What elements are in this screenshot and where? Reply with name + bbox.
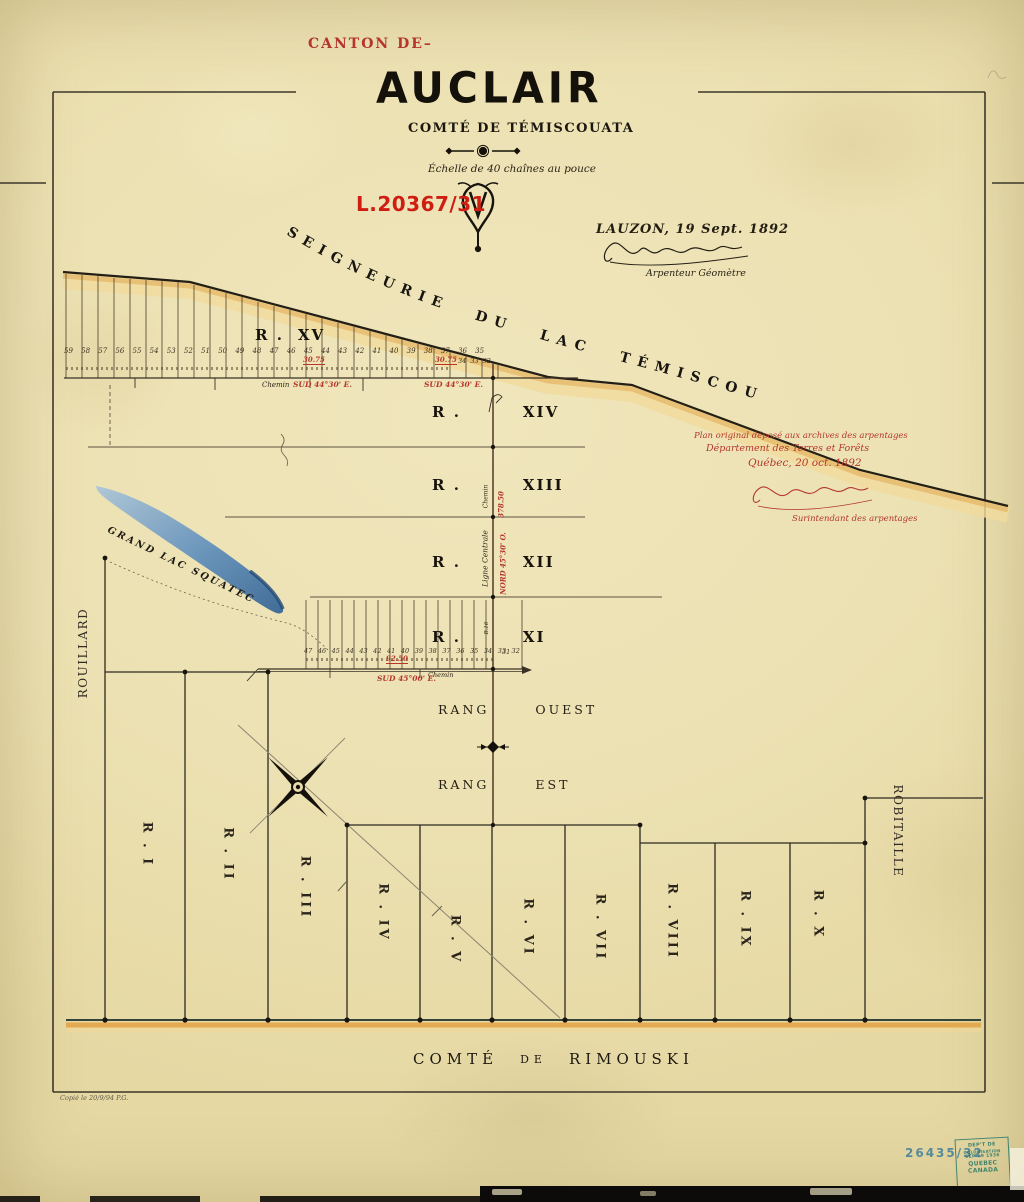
south-county-word1: COMTÉ [413,1050,498,1068]
range-label-xiv-prefix: R . [432,403,461,421]
scale-note: Échelle de 40 chaînes au pouce [428,163,596,175]
file-number-stamp: L.20367/31 [356,192,486,216]
range-label-viii: R . VIII [665,877,680,967]
edge-mark [492,1189,522,1195]
range-label-xv: R . XV [255,326,325,344]
lot-acreage-row-r15 [66,367,450,370]
rang-est-word2: EST [535,777,570,792]
superintendent-signature [753,487,872,510]
bearing-r15-a: SUD 44°30' E. [293,380,352,389]
canton-label: CANTON DE– [308,36,433,52]
east-neighbor-label: ROBITAILLE [891,771,905,891]
compass-star [268,757,328,817]
bearing-r11: SUD 45°00' E. [377,674,436,683]
survey-diagonal [238,725,560,1018]
south-boundary [66,1020,981,1027]
edge-mark [640,1191,656,1196]
range-label-i: R . I [140,800,155,890]
distance-r15-b: 30.75 [435,355,457,365]
archive-note-line3: Québec, 20 oct. 1892 [748,457,862,469]
torn-corner [1010,1148,1024,1190]
map-linework: SEIGNEURIE DU LAC TÉMISCOUATA [0,0,1024,1202]
surveyor-title: Arpenteur Géomètre [646,268,746,279]
range-label-iii: R . III [298,843,313,933]
county-label: COMTÉ DE TÉMISCOUATA [408,121,634,136]
lot-numbers-r15: 59 58 57 56 55 54 53 52 51 50 49 48 47 4… [64,347,454,355]
range-label-v: R . V [448,895,463,985]
range-label-xv-num: XV [298,326,325,344]
range-label-x: R . X [811,870,826,960]
lot-numbers-r11-tail: 31 [502,648,510,656]
center-distance: 378.50 [497,480,506,530]
range-label-xiii-num: XIII [523,476,564,494]
archive-note-line2: Département des Terres et Forêts [706,443,869,454]
range-label-xii: R . XII [432,553,555,571]
rang-est-word1: RANG [438,777,489,792]
map-sheet: SEIGNEURIE DU LAC TÉMISCOUATA CANTON DE–… [0,0,1024,1202]
bearing-r15-b: SUD 44°30' E. [424,380,483,389]
b16-label: B.16 [484,615,490,641]
archive-note-line1: Plan original déposé aux archives des ar… [694,431,908,441]
range-label-xi-num: XI [523,628,546,646]
photo-edge-strip-left [0,1196,480,1202]
range-label-xii-num: XII [523,553,555,571]
range-label-vi: R . VI [521,883,536,973]
copy-note: Copié le 20/9/94 P.G. [60,1094,128,1102]
dept-stamp-line5: CANADA [957,1166,1009,1177]
rang-divider-ornament [477,741,509,753]
range-label-iv: R . IV [376,868,391,958]
range-label-xiii-prefix: R . [432,476,461,494]
west-neighbor-label: ROUILLARD [76,593,90,713]
rang-ouest-word1: RANG [438,702,489,717]
range-label-ii: R . II [221,810,236,900]
distance-r15-a: 30.75 [303,355,325,365]
range-label-xiv: R . XIV [432,403,559,421]
margin-scribble [988,71,1006,79]
range-label-xii-prefix: R . [432,553,461,571]
place-date: LAUZON, 19 Sept. 1892 [596,222,789,237]
south-county-word2: DE [520,1053,547,1066]
lake [96,486,330,652]
township-name: AUCLAIR [376,63,603,113]
superintendent-title: Surintendant des arpentages [792,514,918,524]
lot-numbers-r15-tail: 34 33 32 [458,357,491,365]
range-label-xiv-num: XIV [523,403,559,421]
center-bearing: NORD 45°30' O. [499,524,508,604]
range-label-vii: R . VII [593,883,608,973]
neatline [0,92,1024,1092]
distance-r11: 92.50 [386,654,408,664]
rang-ouest-label: RANG OUEST [438,702,597,717]
title-divider-ornament [446,145,520,156]
survey-dots [102,376,867,1023]
chemin-label-center: Chemin [483,477,490,517]
south-county-word3: RIMOUSKI [569,1050,694,1068]
ligne-centrale-label: Ligne Centrale [481,521,490,597]
surveyor-signature [604,243,748,265]
range-label-xi-prefix: R . [432,628,461,646]
rang-ouest-word2: OUEST [535,702,597,717]
lot-numbers-r11: 47 46 45 44 43 42 41 40 39 38 37 36 35 3… [304,647,520,655]
south-county-label: COMTÉ DE RIMOUSKI [413,1050,694,1068]
photo-edge-strip-right [480,1186,1024,1202]
edge-mark [810,1188,852,1195]
range-label-ix: R . IX [738,875,753,965]
rang-est-label: RANG EST [438,777,570,792]
range-label-xv-prefix: R . [255,326,284,344]
chemin-label-r15: Chemin [262,381,289,389]
